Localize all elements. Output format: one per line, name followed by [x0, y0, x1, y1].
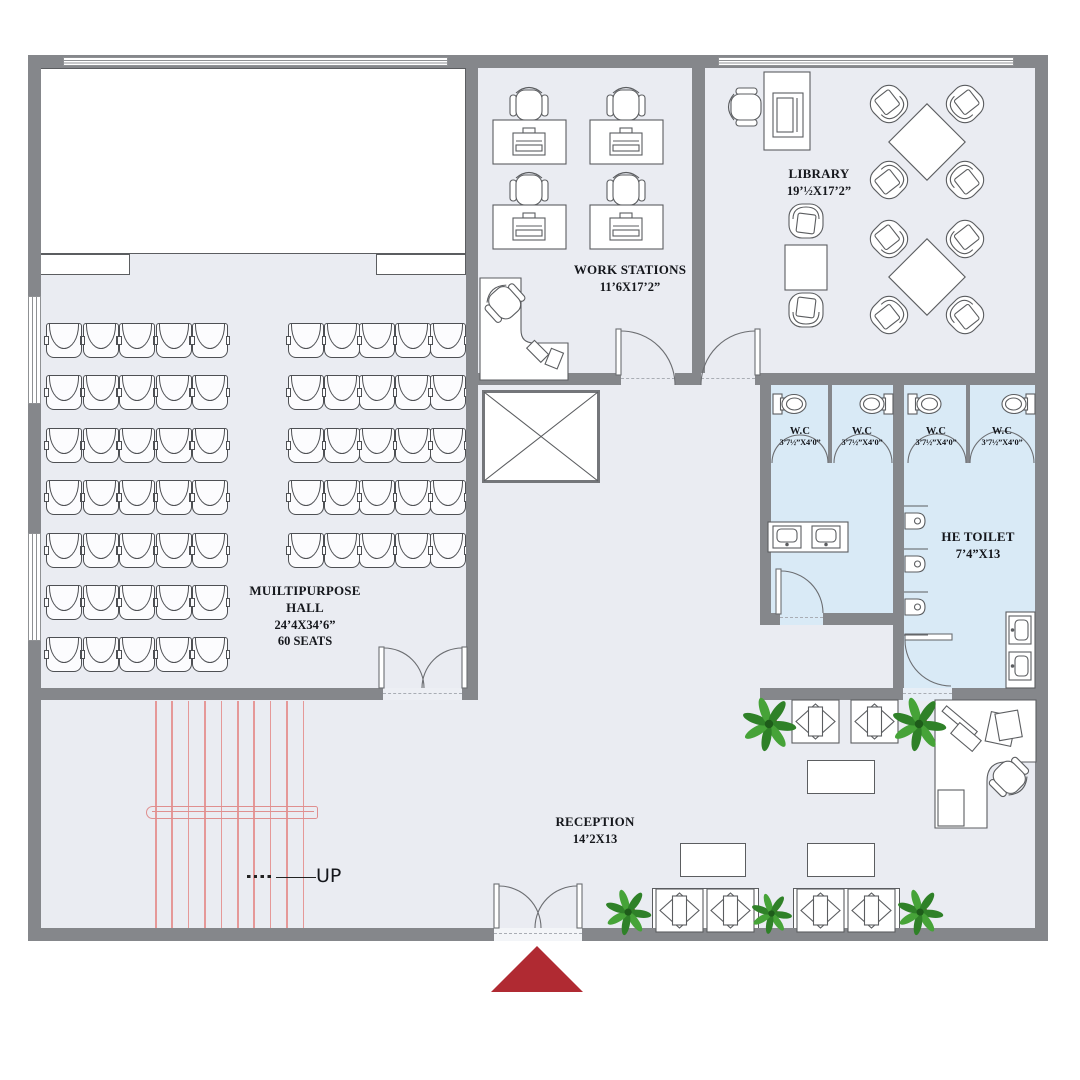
paper	[995, 710, 1022, 741]
reception-furniture	[656, 700, 1036, 932]
wc-stall-label: W.C3’7½”X4’0”	[831, 426, 893, 448]
cabinet	[938, 790, 964, 826]
he-toilet-label: HE TOILET 7’4”X13	[908, 529, 1048, 562]
library-furniture	[729, 72, 990, 339]
plant-icon	[897, 889, 944, 936]
floor-plan: MUILTIPURPOSE HALL 24’4X34’6” 60 SEATS W…	[0, 0, 1080, 1080]
stairs-up-label: UP	[316, 865, 341, 887]
library-label: LIBRARY 19’½X17’2”	[739, 166, 899, 199]
work-stations-label: WORK STATIONS 11’6X17’2”	[540, 262, 720, 295]
plant-icon	[751, 893, 792, 935]
elevator-x	[484, 392, 598, 481]
up-arrow-dots	[247, 875, 274, 878]
plant-icon	[605, 889, 652, 936]
library-side-table	[785, 245, 827, 290]
wc-stall-label: W.C3’7½”X4’0”	[769, 426, 831, 448]
multipurpose-hall-label: MUILTIPURPOSE HALL 24’4X34’6” 60 SEATS	[205, 583, 405, 649]
wc-stall-label: W.C3’7½”X4’0”	[905, 426, 967, 448]
plant-icon	[742, 696, 797, 751]
door-arcs	[379, 329, 1034, 928]
reception-label: RECEPTION 14’2X13	[515, 814, 675, 847]
work-stations-furniture	[479, 88, 663, 381]
up-arrow-line	[276, 877, 316, 878]
entrance-marker-icon	[491, 946, 583, 992]
wc-stall-label: W.C3’7½”X4’0”	[971, 426, 1033, 448]
